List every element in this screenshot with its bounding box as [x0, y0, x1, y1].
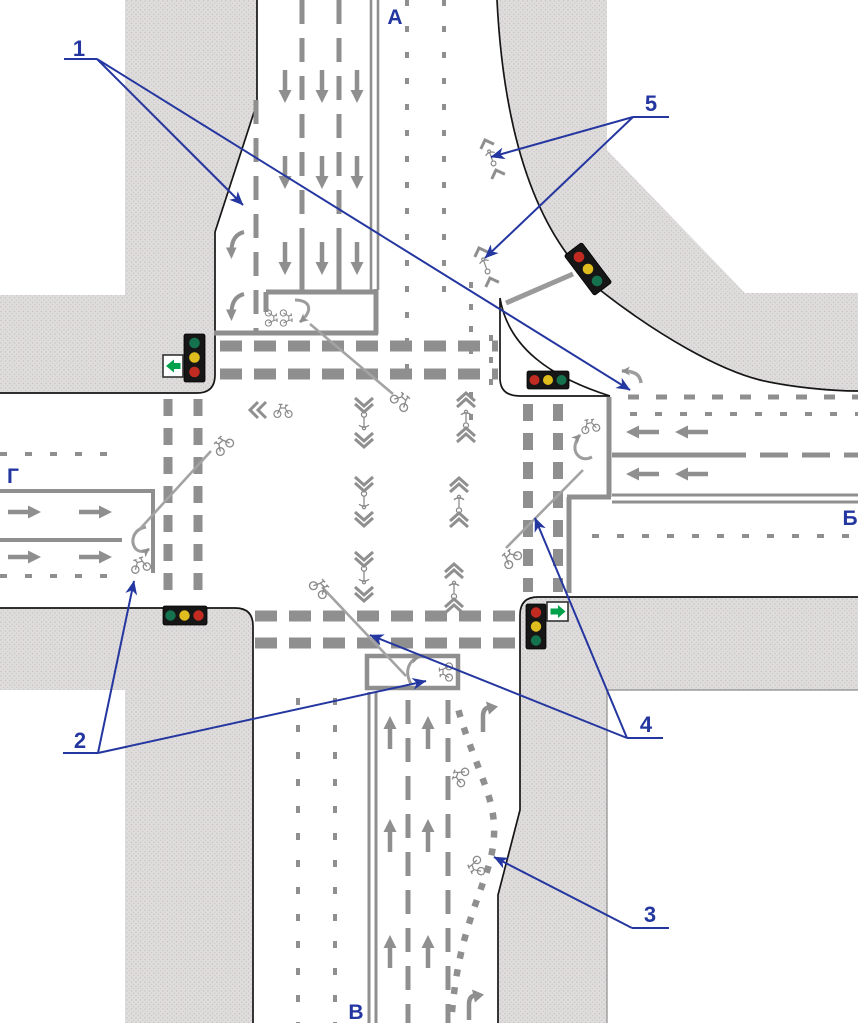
lane-arrow-right-icon [79, 551, 112, 564]
road-east-markings [567, 371, 858, 593]
bicycle-icon [265, 310, 277, 326]
hook-turn-arrow-icon [408, 657, 419, 684]
center-bike-route-markings [250, 393, 475, 613]
road-label-south: В [348, 1001, 363, 1023]
lane-arrow-down-icon [279, 242, 292, 275]
lane-arrow-down-icon [351, 242, 364, 275]
lane-arrow-up-icon [384, 935, 397, 968]
bike-chevron-marking-icon [355, 552, 373, 601]
bike-box-east [567, 397, 611, 593]
lane-arrow-right-icon [79, 506, 112, 519]
lane-arrow-down-icon [316, 242, 329, 275]
hook-turn-arrow-icon [295, 300, 309, 322]
lane-arrow-left-icon [626, 468, 659, 481]
green-left-arrow-sign [163, 355, 183, 377]
bike-crossing-marking-icon [472, 246, 498, 287]
traffic-lights [163, 242, 612, 649]
bike-chevron-marking-icon [355, 477, 373, 526]
callout-3-label: 3 [644, 902, 656, 927]
signal-pole [506, 274, 573, 303]
lane-arrow-right-icon [8, 506, 41, 519]
lane-edge-line [0, 491, 155, 573]
bike-chevron-marking-west-icon [250, 402, 292, 418]
corner-turn-arrow-icon [622, 371, 641, 383]
intersection-scheme-canvas: 1 2 3 4 5 А Б В Г [0, 0, 858, 1023]
lane-arrow-down-icon [351, 70, 364, 103]
slip-lane-bike-crossings [472, 138, 504, 287]
road-west-markings [0, 454, 155, 576]
green-right-arrow-sign [547, 602, 568, 621]
center-double-line [369, 692, 376, 1023]
lane-arrow-left-icon [675, 468, 708, 481]
bicycle-icon [308, 575, 333, 600]
road-label-west: Г [7, 465, 19, 488]
center-double-line [371, 0, 378, 290]
lane-arrow-up-icon [422, 935, 435, 968]
bike-chevron-marking-icon [445, 564, 463, 613]
bicycle-icon [280, 310, 292, 326]
bicycle-icon [498, 545, 523, 570]
hook-turn-arrow-icon [575, 435, 592, 459]
lane-arrow-up-right-icon [483, 702, 498, 733]
sidewalk-blocks [0, 0, 858, 1023]
road-south-markings [298, 656, 498, 1023]
traffic-light-east-island [527, 371, 569, 389]
dotted-bike-lane [452, 700, 494, 1012]
bicycle-icon [580, 418, 600, 435]
lane-arrow-up-right-icon [469, 990, 484, 1021]
callout-5-label: 5 [645, 91, 657, 116]
lane-arrow-down-icon [316, 156, 329, 189]
left-turn-arrow-icon [226, 232, 244, 259]
bike-box-west [129, 527, 151, 574]
callout-1-label: 1 [73, 36, 85, 61]
left-turn-arrow-icon [226, 294, 244, 321]
lane-arrow-down-icon [279, 70, 292, 103]
bike-crossing-marking-icon [478, 138, 504, 179]
lane-arrow-left-icon [626, 426, 659, 439]
bike-chevron-marking-icon [355, 398, 373, 447]
block-southeast [498, 597, 858, 1023]
lane-arrow-up-icon [384, 819, 397, 852]
bike-chevron-marking-icon [450, 478, 468, 527]
lane-arrow-right-icon [8, 551, 41, 564]
road-label-north: А [387, 6, 402, 29]
lane-arrow-up-icon [384, 716, 397, 749]
bicycle-icon [450, 765, 470, 788]
bicycle-icon [210, 433, 235, 458]
lane-arrow-down-icon [351, 156, 364, 189]
center-double-line [612, 495, 858, 502]
road-label-east: Б [842, 507, 857, 530]
bicycle-icon [466, 855, 486, 878]
intersection-diagram: 1 2 3 4 5 А Б В Г [0, 0, 858, 1023]
bicycle-icon [129, 556, 151, 574]
lane-arrow-left-icon [675, 426, 708, 439]
lane-arrow-down-icon [316, 70, 329, 103]
block-southwest [0, 608, 253, 1023]
hook-turn-arrow-icon [133, 527, 149, 552]
lane-arrow-up-icon [422, 716, 435, 749]
lane-arrow-up-icon [422, 819, 435, 852]
callout-4-label: 4 [640, 712, 653, 737]
traffic-light-southwest [163, 606, 207, 625]
callout-2-label: 2 [74, 728, 86, 753]
